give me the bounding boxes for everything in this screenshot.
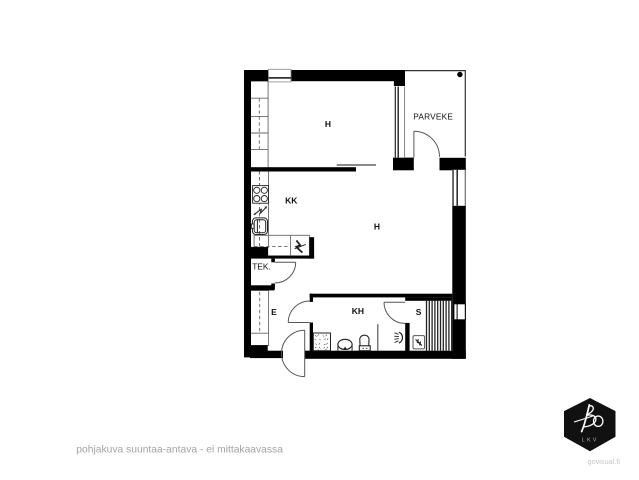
svg-text:S: S (416, 307, 422, 317)
svg-text:TEK.: TEK. (252, 261, 271, 271)
svg-text:PARVEKE: PARVEKE (413, 112, 453, 122)
svg-text:H: H (374, 221, 380, 231)
svg-text:govisual.fi: govisual.fi (588, 457, 621, 466)
svg-text:KK: KK (285, 195, 298, 205)
svg-text:E: E (271, 307, 277, 317)
svg-text:pohjakuva suuntaa-antava - ei: pohjakuva suuntaa-antava - ei mittakaava… (76, 444, 283, 455)
svg-text:H: H (325, 119, 331, 129)
svg-text:KH: KH (352, 306, 364, 316)
svg-text:LKV: LKV (582, 438, 599, 444)
